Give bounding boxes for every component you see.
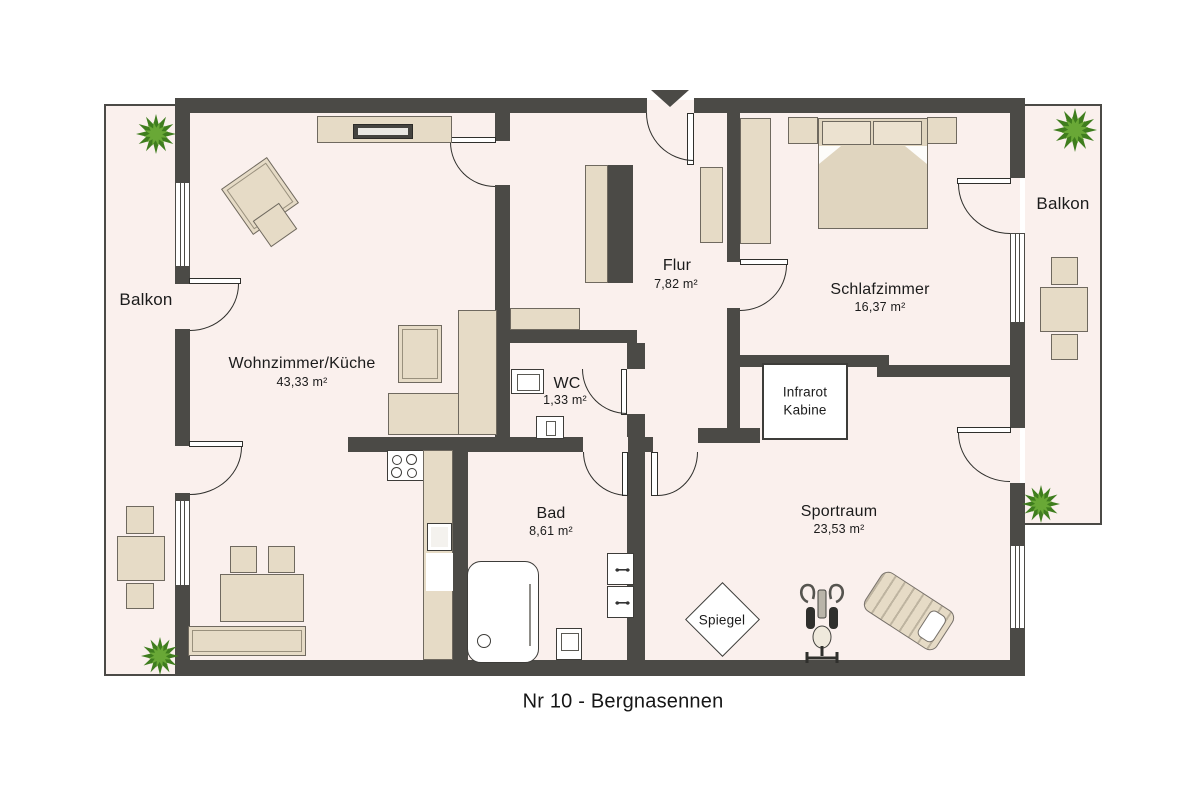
room-area-sportraum: 23,53 m² <box>814 522 865 536</box>
room-area-bad: 8,61 m² <box>529 524 573 538</box>
pillow-left <box>822 121 871 145</box>
wall-bedroom-bottom-2 <box>877 365 1025 377</box>
room-area-flur: 7,82 m² <box>654 277 698 291</box>
infrared-cabin-label-line1: Infrarot <box>783 385 827 400</box>
exercise-bike-icon <box>798 580 846 664</box>
balcony-right-chair-bottom <box>1051 334 1078 360</box>
sportroom-door-leaf <box>651 452 658 496</box>
sofa-vertical <box>458 310 497 435</box>
hall-wardrobe-small <box>700 167 723 243</box>
bathtub <box>467 561 539 663</box>
window-bedroom <box>1010 233 1025 323</box>
balcony-left-chair-bottom <box>126 583 154 609</box>
wall-left-2 <box>175 266 190 284</box>
infrared-cabin-label-line2: Kabine <box>783 403 826 418</box>
lowboard <box>188 626 306 656</box>
room-label-wohnzimmer: Wohnzimmer/Küche <box>229 355 376 373</box>
lounge-chair <box>398 325 442 383</box>
room-label-flur: Flur <box>663 257 691 275</box>
balcony-left-label: Balkon <box>119 290 172 310</box>
room-area-wc: 1,33 m² <box>543 393 587 407</box>
plant-icon-balcony-left-bottom <box>141 637 179 675</box>
tv <box>353 124 413 139</box>
wall-left-3 <box>175 329 190 446</box>
floorplan-canvas: Balkon Balkon Wohnzimmer/Küche 43,33 m² … <box>0 0 1200 800</box>
wall-right-1 <box>1010 98 1025 178</box>
kitchen-appliance <box>426 553 453 591</box>
room-label-bad: Bad <box>536 505 565 523</box>
room-area-schlafzimmer: 16,37 m² <box>855 300 906 314</box>
balcony-right-table <box>1040 287 1088 332</box>
wall-top-left <box>175 98 647 113</box>
wall-between-doors <box>628 437 653 452</box>
wall-wc-top <box>510 330 637 343</box>
wall-wc-right-1 <box>627 343 645 369</box>
bath-toilet <box>556 628 582 660</box>
wall-left-1 <box>175 98 190 182</box>
balcony-right-label: Balkon <box>1036 194 1089 214</box>
dining-table <box>220 574 304 622</box>
room-label-sportraum: Sportraum <box>801 503 878 521</box>
wall-bath-left <box>453 450 468 662</box>
bath-sink-1 <box>607 553 634 585</box>
hall-wardrobe-beige <box>585 165 608 283</box>
hall-wardrobe-dark <box>608 165 633 283</box>
window-livingroom-bottom <box>175 500 190 586</box>
stove <box>387 450 424 481</box>
wall-top-right <box>694 98 1025 113</box>
wall-left-4 <box>175 493 190 500</box>
dining-chair-2 <box>268 546 295 573</box>
room-label-schlafzimmer: Schlafzimmer <box>830 281 929 299</box>
plant-icon-balcony-right-top <box>1053 108 1097 152</box>
bath-sink-2 <box>607 586 634 618</box>
bedroom-wardrobe <box>740 118 771 244</box>
plant-icon-balcony-right-bottom <box>1022 485 1060 523</box>
wall-wc-right-2 <box>627 414 645 437</box>
sofa-horizontal <box>388 393 459 435</box>
room-area-wohnzimmer: 43,33 m² <box>277 375 328 389</box>
infrared-cabin <box>762 363 848 440</box>
balcony-left-table <box>117 536 165 581</box>
wall-hall-bedroom-2 <box>727 308 740 433</box>
balcony-right-chair-top <box>1051 257 1078 285</box>
wc-sink <box>511 369 544 394</box>
balcony-left-chair-top <box>126 506 154 534</box>
wall-divider-living-hall-1 <box>495 113 510 141</box>
room-label-wc: WC <box>553 375 580 393</box>
wall-bottom <box>175 660 1025 676</box>
window-livingroom-top <box>175 182 190 267</box>
hall-bench <box>510 308 580 330</box>
window-sportroom <box>1010 545 1025 629</box>
pillow-right <box>873 121 922 145</box>
wall-hall-bedroom-1 <box>727 113 740 262</box>
wc-toilet <box>536 416 564 439</box>
nightstand-left <box>788 117 818 144</box>
wall-divider-living-hall-2 <box>495 185 510 437</box>
nightstand-right <box>927 117 957 144</box>
dining-chair-1 <box>230 546 257 573</box>
plan-title: Nr 10 - Bergnasennen <box>523 691 724 714</box>
mirror-label: Spiegel <box>699 613 745 628</box>
kitchen-sink <box>427 523 452 551</box>
plant-icon-balcony-left-top <box>136 114 176 154</box>
